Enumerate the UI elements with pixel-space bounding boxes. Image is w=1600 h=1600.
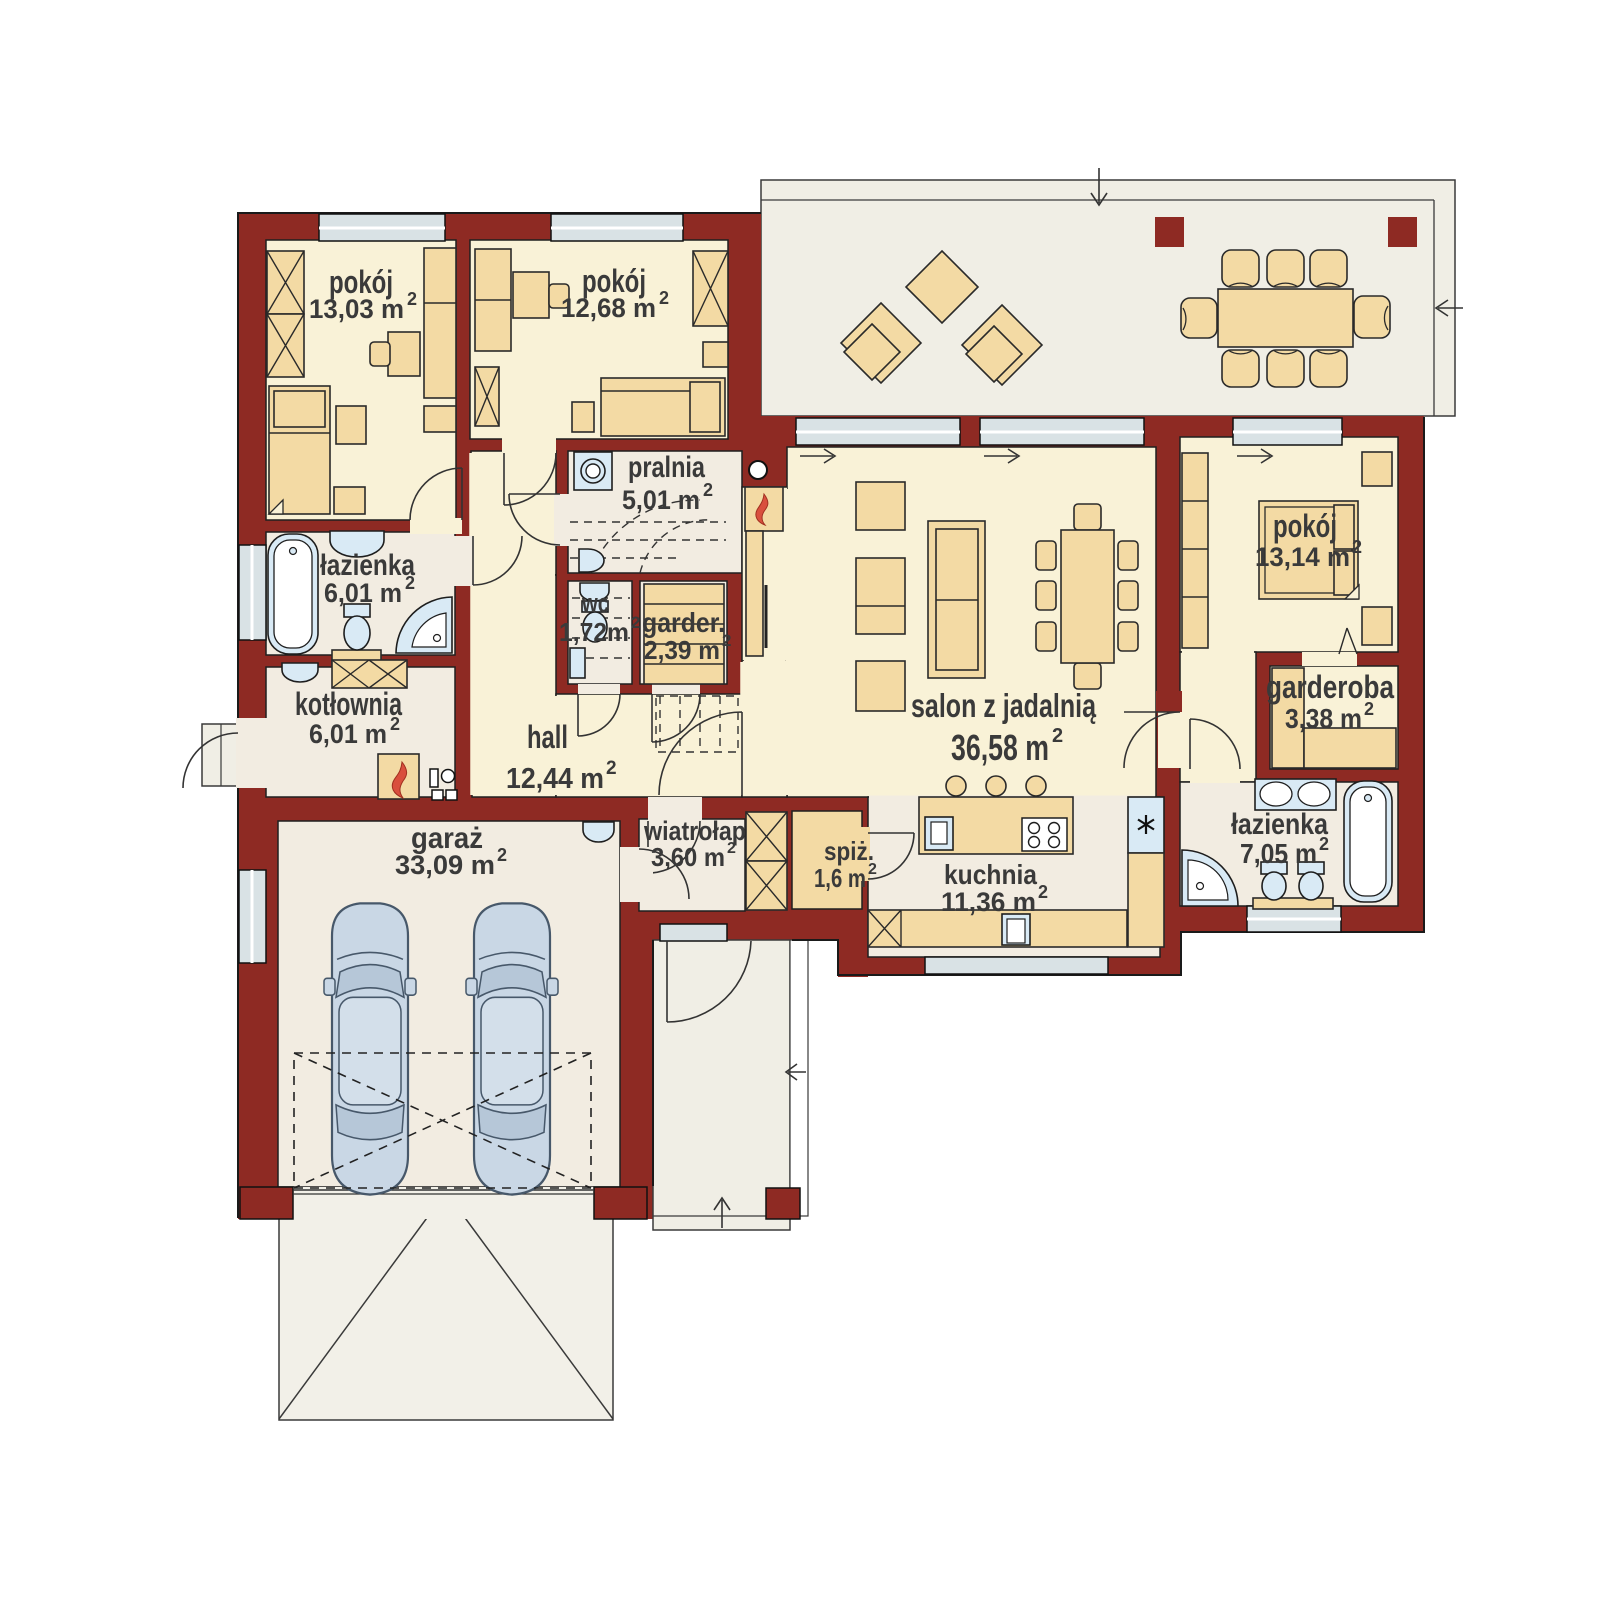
svg-text:6,01 m: 6,01 m <box>309 719 387 749</box>
svg-text:garder.: garder. <box>642 607 725 638</box>
svg-text:garderoba: garderoba <box>1266 669 1394 705</box>
svg-text:3,60 m: 3,60 m <box>651 842 725 872</box>
svg-text:pralnia: pralnia <box>628 451 705 484</box>
svg-text:1,72m: 1,72m <box>559 617 629 647</box>
svg-text:kotłownia: kotłownia <box>295 686 402 722</box>
svg-text:2: 2 <box>703 480 713 500</box>
svg-text:2: 2 <box>1352 537 1362 557</box>
svg-text:13,14 m: 13,14 m <box>1255 542 1350 572</box>
svg-text:11,36 m: 11,36 m <box>941 887 1036 917</box>
svg-text:3,38 m: 3,38 m <box>1285 703 1362 734</box>
svg-text:2: 2 <box>405 573 415 593</box>
svg-text:2: 2 <box>606 758 617 779</box>
svg-text:2: 2 <box>722 631 731 650</box>
svg-text:2: 2 <box>659 288 669 308</box>
svg-text:6,01 m: 6,01 m <box>324 578 402 608</box>
svg-text:2: 2 <box>1319 834 1329 854</box>
svg-text:wc: wc <box>581 588 609 618</box>
svg-text:2: 2 <box>497 845 507 865</box>
svg-text:2: 2 <box>1052 725 1063 747</box>
svg-text:salon z jadalnią: salon z jadalnią <box>911 687 1096 724</box>
svg-text:kuchnia: kuchnia <box>944 859 1037 890</box>
svg-text:łazienka: łazienka <box>1231 808 1328 841</box>
svg-text:1,6 m: 1,6 m <box>814 863 866 893</box>
svg-text:2: 2 <box>727 840 736 857</box>
svg-text:7,05 m: 7,05 m <box>1240 838 1317 869</box>
svg-text:12,44 m: 12,44 m <box>506 763 604 795</box>
svg-text:33,09 m: 33,09 m <box>395 850 495 880</box>
svg-text:36,58 m: 36,58 m <box>951 727 1049 768</box>
svg-text:2: 2 <box>407 289 417 309</box>
svg-text:hall: hall <box>527 719 568 755</box>
svg-text:12,68 m: 12,68 m <box>561 293 656 323</box>
svg-text:2: 2 <box>631 613 640 632</box>
svg-text:2,39 m: 2,39 m <box>644 635 720 665</box>
svg-text:2: 2 <box>1038 882 1048 902</box>
svg-text:2: 2 <box>1364 699 1374 719</box>
svg-text:13,03 m: 13,03 m <box>309 294 404 324</box>
svg-text:spiż.: spiż. <box>824 836 874 866</box>
svg-text:5,01 m: 5,01 m <box>622 485 700 515</box>
svg-text:pokój: pokój <box>1273 508 1337 544</box>
svg-text:2: 2 <box>390 714 400 734</box>
svg-text:2: 2 <box>868 861 877 878</box>
